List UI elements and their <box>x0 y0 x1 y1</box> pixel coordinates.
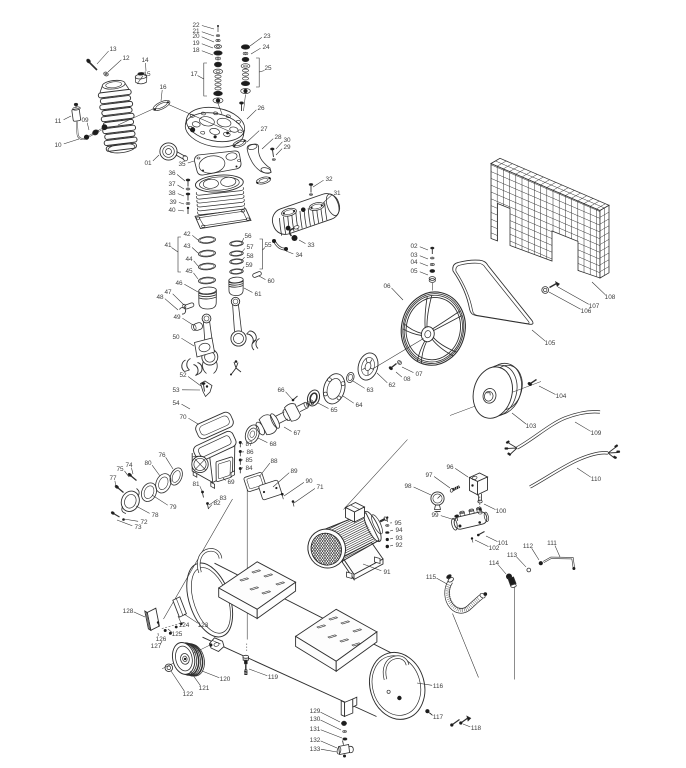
svg-text:46: 46 <box>175 280 183 287</box>
svg-text:97: 97 <box>425 472 433 479</box>
svg-text:76: 76 <box>158 452 166 459</box>
svg-text:105: 105 <box>545 340 556 347</box>
svg-text:65: 65 <box>330 407 338 414</box>
svg-text:14: 14 <box>141 57 149 64</box>
svg-text:05: 05 <box>410 268 418 275</box>
svg-text:86: 86 <box>246 449 254 456</box>
svg-text:33: 33 <box>307 242 315 249</box>
svg-text:11: 11 <box>55 118 62 125</box>
svg-text:63: 63 <box>366 387 374 394</box>
svg-text:01: 01 <box>144 160 152 167</box>
svg-text:81: 81 <box>192 481 200 488</box>
svg-text:113: 113 <box>507 552 518 559</box>
svg-text:90: 90 <box>305 478 313 485</box>
svg-text:50: 50 <box>172 334 180 341</box>
svg-text:72: 72 <box>140 519 148 526</box>
svg-text:54: 54 <box>172 400 180 407</box>
svg-text:133: 133 <box>310 746 321 753</box>
svg-text:116: 116 <box>433 683 444 690</box>
svg-text:34: 34 <box>295 252 303 259</box>
svg-text:88: 88 <box>270 458 278 465</box>
svg-text:115: 115 <box>426 574 437 581</box>
svg-text:18: 18 <box>192 47 200 54</box>
svg-text:26: 26 <box>257 105 265 112</box>
svg-text:82: 82 <box>213 500 221 507</box>
svg-text:03: 03 <box>410 252 418 259</box>
svg-text:15: 15 <box>143 71 151 78</box>
svg-text:122: 122 <box>183 691 194 698</box>
svg-text:96: 96 <box>446 464 454 471</box>
svg-text:83: 83 <box>219 495 227 502</box>
svg-text:07: 07 <box>415 371 423 378</box>
svg-text:79: 79 <box>169 504 177 511</box>
svg-text:102: 102 <box>489 545 500 552</box>
svg-text:73: 73 <box>134 524 142 531</box>
svg-text:28: 28 <box>274 134 282 141</box>
svg-text:69: 69 <box>227 479 235 486</box>
svg-text:19: 19 <box>192 40 200 47</box>
svg-text:99: 99 <box>431 512 439 519</box>
svg-text:36: 36 <box>168 170 176 177</box>
svg-text:41: 41 <box>164 242 172 249</box>
svg-text:132: 132 <box>310 737 321 744</box>
svg-text:64: 64 <box>355 402 363 409</box>
svg-text:62: 62 <box>388 382 396 389</box>
svg-text:125: 125 <box>172 631 183 638</box>
svg-text:77: 77 <box>109 475 117 482</box>
svg-text:89: 89 <box>290 468 298 475</box>
svg-text:98: 98 <box>404 483 412 490</box>
svg-text:103: 103 <box>526 423 537 430</box>
svg-text:119: 119 <box>268 674 279 681</box>
svg-text:42: 42 <box>183 231 191 238</box>
svg-text:100: 100 <box>496 508 507 515</box>
svg-text:58: 58 <box>246 253 254 260</box>
svg-text:92: 92 <box>395 542 403 549</box>
svg-text:84: 84 <box>245 465 253 472</box>
svg-text:61: 61 <box>254 291 262 298</box>
svg-text:35: 35 <box>178 161 186 168</box>
svg-text:129: 129 <box>310 708 321 715</box>
svg-text:53: 53 <box>172 387 180 394</box>
svg-text:110: 110 <box>591 476 602 483</box>
svg-text:68: 68 <box>269 441 277 448</box>
svg-text:23: 23 <box>263 33 271 40</box>
svg-text:10: 10 <box>54 142 62 149</box>
svg-text:117: 117 <box>433 714 444 721</box>
svg-text:91: 91 <box>383 569 391 576</box>
svg-text:04: 04 <box>410 259 418 266</box>
svg-text:80: 80 <box>144 460 152 467</box>
svg-text:30: 30 <box>283 137 291 144</box>
svg-text:31: 31 <box>333 190 341 197</box>
svg-text:85: 85 <box>245 457 253 464</box>
svg-text:108: 108 <box>605 294 616 301</box>
svg-text:39: 39 <box>169 199 177 206</box>
svg-text:87: 87 <box>245 441 253 448</box>
svg-text:56: 56 <box>244 233 252 240</box>
svg-text:29: 29 <box>283 144 291 151</box>
svg-text:09: 09 <box>81 117 89 124</box>
svg-text:32: 32 <box>325 176 333 183</box>
svg-text:71: 71 <box>316 484 324 491</box>
svg-text:75: 75 <box>116 466 124 473</box>
svg-text:16: 16 <box>159 84 167 91</box>
svg-text:123: 123 <box>198 622 209 629</box>
svg-text:59: 59 <box>245 262 253 269</box>
svg-text:44: 44 <box>185 256 193 263</box>
svg-text:12: 12 <box>122 55 130 62</box>
svg-text:38: 38 <box>168 190 176 197</box>
svg-text:106: 106 <box>581 308 592 315</box>
svg-text:52: 52 <box>179 372 187 379</box>
svg-text:49: 49 <box>173 314 181 321</box>
svg-text:127: 127 <box>151 643 162 650</box>
svg-text:120: 120 <box>220 676 231 683</box>
svg-text:93: 93 <box>395 535 403 542</box>
svg-text:45: 45 <box>185 268 193 275</box>
svg-text:109: 109 <box>591 430 602 437</box>
svg-text:02: 02 <box>410 243 418 250</box>
svg-text:70: 70 <box>179 414 187 421</box>
svg-text:67: 67 <box>293 430 301 437</box>
svg-text:25: 25 <box>264 65 272 72</box>
svg-text:24: 24 <box>262 44 270 51</box>
svg-text:124: 124 <box>179 622 190 629</box>
svg-text:43: 43 <box>183 243 191 250</box>
svg-text:60: 60 <box>267 278 275 285</box>
svg-text:95: 95 <box>394 520 402 527</box>
svg-text:08: 08 <box>403 376 411 383</box>
svg-text:131: 131 <box>310 726 321 733</box>
svg-text:17: 17 <box>190 71 198 78</box>
svg-text:118: 118 <box>471 725 482 732</box>
svg-text:48: 48 <box>156 294 164 301</box>
svg-text:78: 78 <box>151 512 159 519</box>
svg-text:20: 20 <box>192 33 200 40</box>
svg-text:128: 128 <box>123 608 134 615</box>
svg-text:57: 57 <box>246 244 254 251</box>
svg-text:47: 47 <box>164 289 172 296</box>
svg-text:74: 74 <box>125 462 133 469</box>
svg-text:121: 121 <box>199 685 210 692</box>
svg-text:27: 27 <box>260 126 268 133</box>
svg-text:06: 06 <box>383 283 391 290</box>
svg-text:111: 111 <box>547 540 557 547</box>
svg-text:40: 40 <box>168 207 176 214</box>
svg-text:13: 13 <box>109 46 117 53</box>
svg-text:66: 66 <box>277 387 285 394</box>
svg-text:130: 130 <box>310 716 321 723</box>
svg-text:94: 94 <box>395 527 403 534</box>
svg-text:114: 114 <box>489 560 500 567</box>
svg-text:104: 104 <box>556 393 567 400</box>
svg-text:55: 55 <box>264 242 272 249</box>
svg-text:37: 37 <box>168 181 176 188</box>
